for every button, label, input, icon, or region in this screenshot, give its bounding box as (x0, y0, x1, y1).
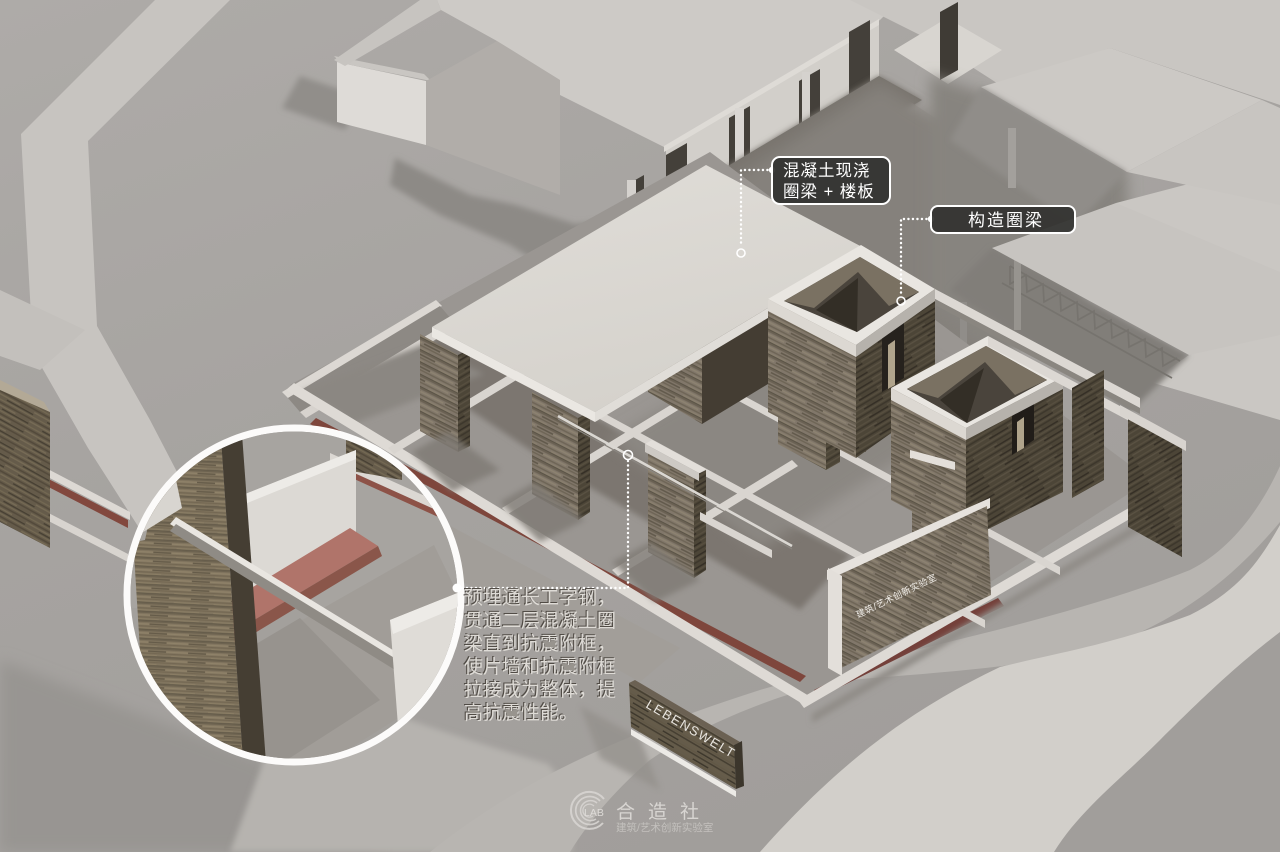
svg-text:混凝土现浇: 混凝土现浇 (783, 161, 871, 180)
svg-text:合造社: 合造社 (616, 801, 712, 823)
svg-text:构造圈梁: 构造圈梁 (968, 211, 1044, 230)
svg-text:贯通二层混凝土圈: 贯通二层混凝土圈 (464, 610, 616, 632)
svg-text:建筑/艺术创新实验室: 建筑/艺术创新实验室 (616, 821, 713, 834)
svg-text:高抗震性能。: 高抗震性能。 (464, 702, 578, 724)
svg-text:预埋通长工字钢，: 预埋通长工字钢， (464, 587, 616, 609)
svg-text:梁直到抗震附框，: 梁直到抗震附框， (464, 633, 616, 655)
svg-text:使片墙和抗震附框: 使片墙和抗震附框 (464, 656, 616, 678)
svg-text:拉接成为整体，提: 拉接成为整体，提 (464, 679, 616, 701)
svg-text:LAB: LAB (584, 807, 604, 819)
svg-text:圈梁 + 楼板: 圈梁 + 楼板 (783, 182, 875, 201)
